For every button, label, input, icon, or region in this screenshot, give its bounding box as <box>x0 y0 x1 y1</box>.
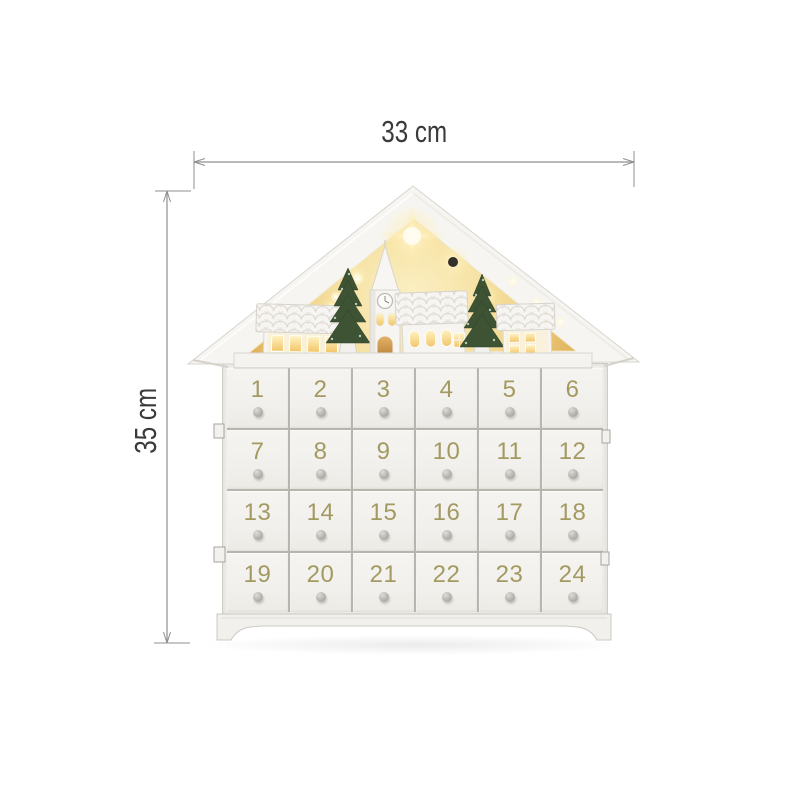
drawer-18: 18 <box>542 491 603 551</box>
drawer-knob-icon <box>379 530 389 540</box>
width-dimension-value: 33 cm <box>381 112 447 152</box>
drawer-12: 12 <box>542 430 603 490</box>
drawer-knob-icon <box>316 530 326 540</box>
drawer-number: 5 <box>503 378 517 402</box>
pine-tree-right-icon <box>460 274 504 358</box>
drawer-knob-icon <box>442 592 452 602</box>
drawer-knob-icon <box>568 530 578 540</box>
drawer-23: 23 <box>479 553 540 613</box>
drawer-22: 22 <box>416 553 477 613</box>
drawer-number: 18 <box>559 501 587 525</box>
width-dimension <box>194 151 634 189</box>
drawer-4: 4 <box>416 368 477 428</box>
height-dimension-label: 35 cm <box>126 351 166 491</box>
drawer-number: 7 <box>251 440 265 464</box>
church-nave <box>395 291 469 357</box>
drawer-number: 1 <box>251 378 265 402</box>
drawer-number: 22 <box>433 563 461 587</box>
drawer-number: 13 <box>244 501 272 525</box>
village-house-left-icon <box>255 304 352 357</box>
drawer-number: 24 <box>559 563 587 587</box>
drawer-knob-icon <box>568 592 578 602</box>
drawer-3: 3 <box>353 368 414 428</box>
drawer-9: 9 <box>353 430 414 490</box>
drawer-6: 6 <box>542 368 603 428</box>
drawer-number: 10 <box>433 440 461 464</box>
drawer-11: 11 <box>479 430 540 490</box>
drawer-number: 15 <box>370 501 398 525</box>
drawer-knob-icon <box>505 407 515 417</box>
gable-scene <box>234 204 592 368</box>
drawer-knob-icon <box>442 407 452 417</box>
drawer-number: 12 <box>559 440 587 464</box>
drawer-knob-icon <box>568 469 578 479</box>
drawer-8: 8 <box>290 430 351 490</box>
roof <box>188 186 639 367</box>
drawer-knob-icon <box>568 407 578 417</box>
drawer-number: 21 <box>370 563 398 587</box>
drawer-number: 17 <box>496 501 524 525</box>
drawer-number: 9 <box>377 440 391 464</box>
drawer-1: 1 <box>227 368 288 428</box>
drawer-number: 2 <box>314 378 328 402</box>
drawer-knob-icon <box>316 592 326 602</box>
floor-shadow <box>200 635 630 655</box>
drawer-knob-icon <box>505 592 515 602</box>
drawer-16: 16 <box>416 491 477 551</box>
width-dimension-label: 33 cm <box>314 112 514 152</box>
drawer-20: 20 <box>290 553 351 613</box>
product-dimension-image: 123456789101112131415161718192021222324 <box>0 0 800 800</box>
drawer-number: 19 <box>244 563 272 587</box>
drawer-7: 7 <box>227 430 288 490</box>
drawer-21: 21 <box>353 553 414 613</box>
drawer-24: 24 <box>542 553 603 613</box>
drawer-knob-icon <box>316 407 326 417</box>
village-house-right-icon <box>496 303 555 357</box>
drawer-17: 17 <box>479 491 540 551</box>
drawer-knob-icon <box>505 469 515 479</box>
drawer-2: 2 <box>290 368 351 428</box>
base-feet <box>217 614 611 640</box>
drawer-number: 6 <box>566 378 580 402</box>
led-lights <box>301 274 566 327</box>
drawer-knob-icon <box>442 469 452 479</box>
drawer-5: 5 <box>479 368 540 428</box>
drawer-grid: 123456789101112131415161718192021222324 <box>227 368 603 612</box>
drawer-knob-icon <box>253 469 263 479</box>
drawer-knob-icon <box>505 530 515 540</box>
drawer-15: 15 <box>353 491 414 551</box>
drawer-number: 16 <box>433 501 461 525</box>
star-glow <box>322 204 517 321</box>
drawer-knob-icon <box>316 469 326 479</box>
drawer-knob-icon <box>379 469 389 479</box>
drawer-knob-icon <box>253 530 263 540</box>
drawer-number: 14 <box>307 501 335 525</box>
drawer-number: 8 <box>314 440 328 464</box>
church-icon <box>370 240 400 356</box>
calendar-body: 123456789101112131415161718192021222324 <box>222 363 608 615</box>
drawer-number: 20 <box>307 563 335 587</box>
drawer-10: 10 <box>416 430 477 490</box>
drawer-knob-icon <box>442 530 452 540</box>
drawer-knob-icon <box>253 592 263 602</box>
height-dimension-value: 35 cm <box>126 388 166 454</box>
drawer-number: 4 <box>440 378 454 402</box>
drawer-14: 14 <box>290 491 351 551</box>
drawer-13: 13 <box>227 491 288 551</box>
drawer-knob-icon <box>253 407 263 417</box>
drawer-number: 11 <box>497 440 523 464</box>
drawer-knob-icon <box>379 407 389 417</box>
drawer-19: 19 <box>227 553 288 613</box>
pine-tree-left-icon <box>326 268 370 356</box>
drawer-number: 3 <box>377 378 391 402</box>
drawer-number: 23 <box>496 563 524 587</box>
drawer-knob-icon <box>379 592 389 602</box>
